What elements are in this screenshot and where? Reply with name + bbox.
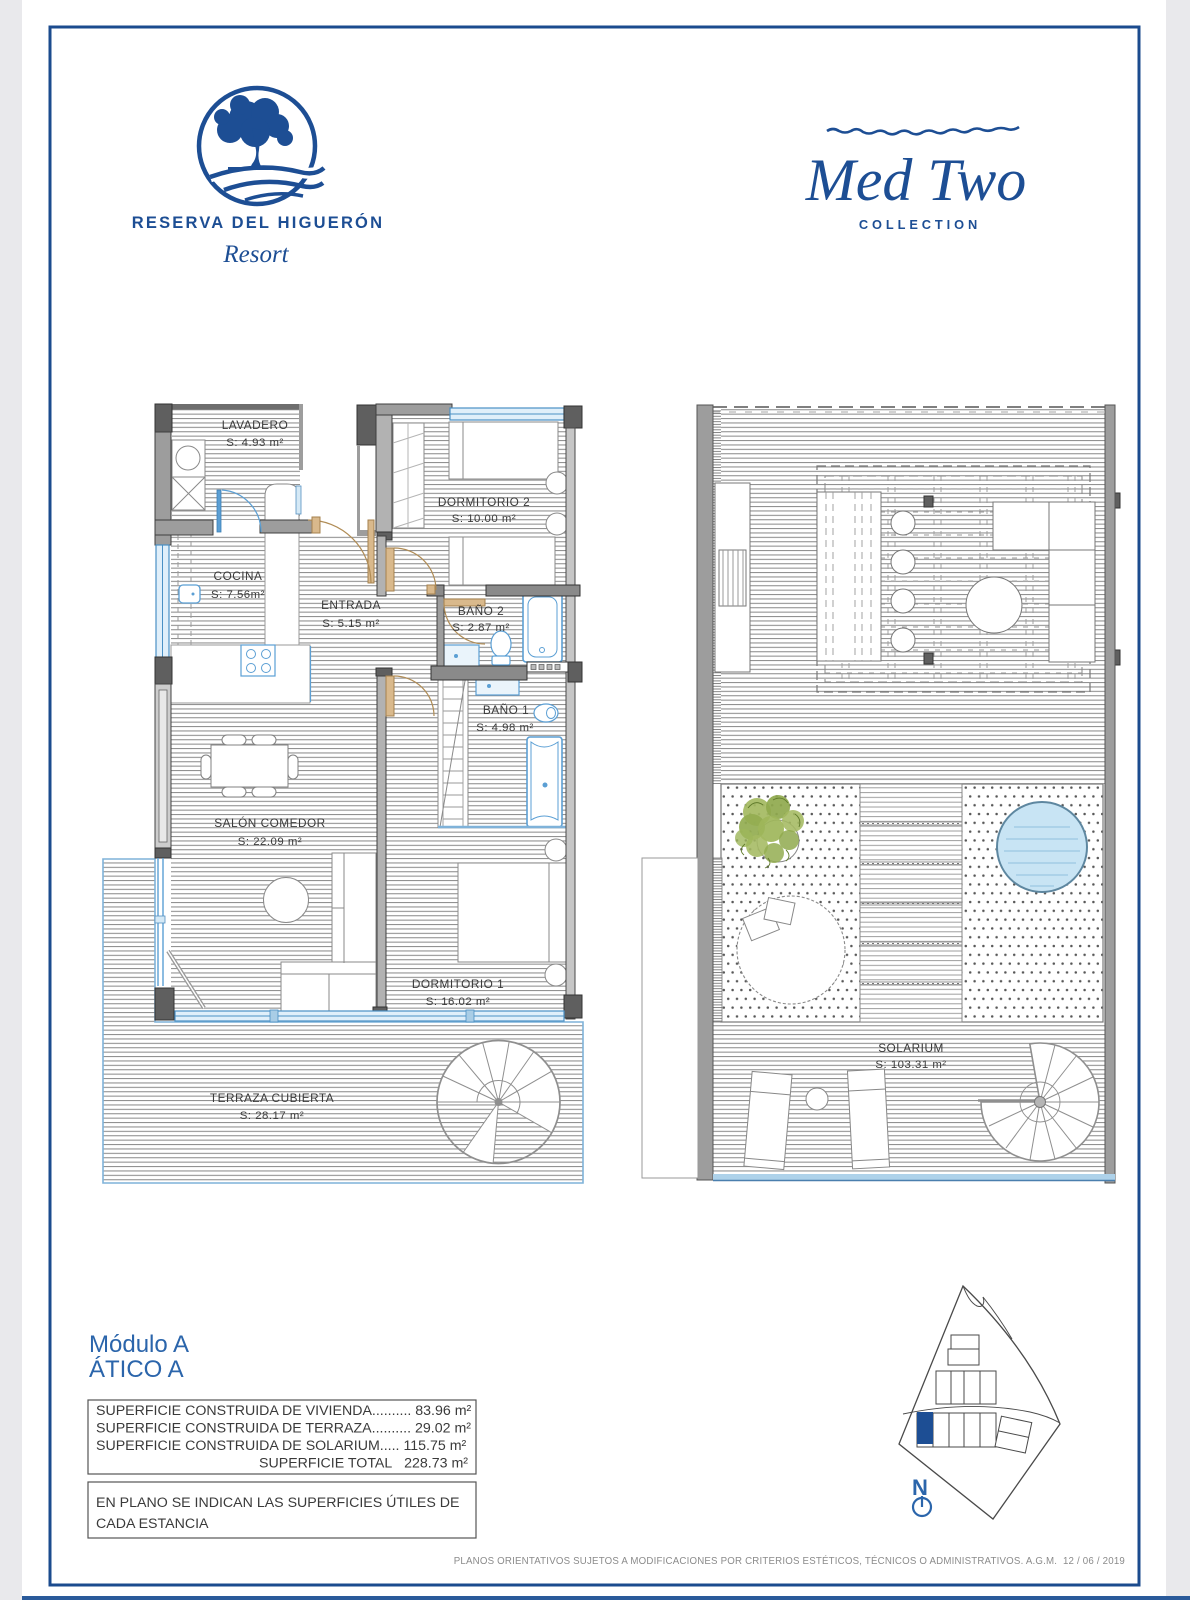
svg-text:Med Two: Med Two	[805, 147, 1027, 213]
svg-text:SUPERFICIE TOTAL 228.73 m²: SUPERFICIE TOTAL 228.73 m²	[259, 1456, 468, 1472]
svg-text:CADA ESTANCIA: CADA ESTANCIA	[96, 1516, 209, 1532]
svg-text:COCINA: COCINA	[214, 569, 263, 583]
svg-text:ÁTICO A: ÁTICO A	[89, 1356, 184, 1383]
svg-text:S: 2.87 m²: S: 2.87 m²	[452, 622, 510, 634]
svg-text:RESERVA DEL HIGUERÓN: RESERVA DEL HIGUERÓN	[132, 213, 384, 232]
svg-text:SUPERFICIE CONSTRUIDA DE VIVIE: SUPERFICIE CONSTRUIDA DE VIVIENDA.......…	[96, 1403, 472, 1419]
svg-text:S: 22.09 m²: S: 22.09 m²	[238, 836, 302, 848]
svg-text:DORMITORIO 2: DORMITORIO 2	[438, 495, 530, 509]
svg-text:DORMITORIO 1: DORMITORIO 1	[412, 977, 504, 991]
svg-text:SUPERFICIE CONSTRUIDA DE TERRA: SUPERFICIE CONSTRUIDA DE TERRAZA........…	[96, 1421, 471, 1437]
svg-text:SOLARIUM: SOLARIUM	[878, 1041, 944, 1055]
svg-text:COLLECTION: COLLECTION	[859, 217, 981, 232]
svg-text:LAVADERO: LAVADERO	[222, 418, 289, 432]
svg-text:BAÑO 1: BAÑO 1	[483, 703, 529, 717]
svg-text:SUPERFICIE CONSTRUIDA DE SOLAR: SUPERFICIE CONSTRUIDA DE SOLARIUM..... 1…	[96, 1438, 467, 1454]
svg-text:S: 16.02 m²: S: 16.02 m²	[426, 996, 490, 1008]
svg-text:S: 4.98 m²: S: 4.98 m²	[476, 722, 534, 734]
svg-text:S: 28.17 m²: S: 28.17 m²	[240, 1110, 304, 1122]
svg-text:PLANOS ORIENTATIVOS SUJETOS A: PLANOS ORIENTATIVOS SUJETOS A MODIFICACI…	[454, 1556, 1125, 1567]
svg-text:BAÑO 2: BAÑO 2	[458, 604, 504, 618]
svg-text:S: 7.56m²: S: 7.56m²	[211, 589, 265, 601]
svg-text:S: 103.31 m²: S: 103.31 m²	[875, 1059, 946, 1071]
svg-text:EN PLANO SE INDICAN LAS SUPERF: EN PLANO SE INDICAN LAS SUPERFICIES ÚTIL…	[96, 1494, 459, 1511]
svg-text:ENTRADA: ENTRADA	[321, 598, 381, 612]
svg-text:S: 10.00 m²: S: 10.00 m²	[452, 513, 516, 525]
svg-text:Módulo A: Módulo A	[89, 1331, 189, 1358]
svg-text:SALÓN COMEDOR: SALÓN COMEDOR	[214, 816, 325, 830]
svg-text:Resort: Resort	[222, 241, 289, 268]
svg-text:N: N	[912, 1475, 928, 1500]
svg-text:S: 5.15 m²: S: 5.15 m²	[322, 618, 380, 630]
svg-text:S: 4.93 m²: S: 4.93 m²	[226, 437, 284, 449]
svg-text:TERRAZA CUBIERTA: TERRAZA CUBIERTA	[210, 1091, 334, 1105]
